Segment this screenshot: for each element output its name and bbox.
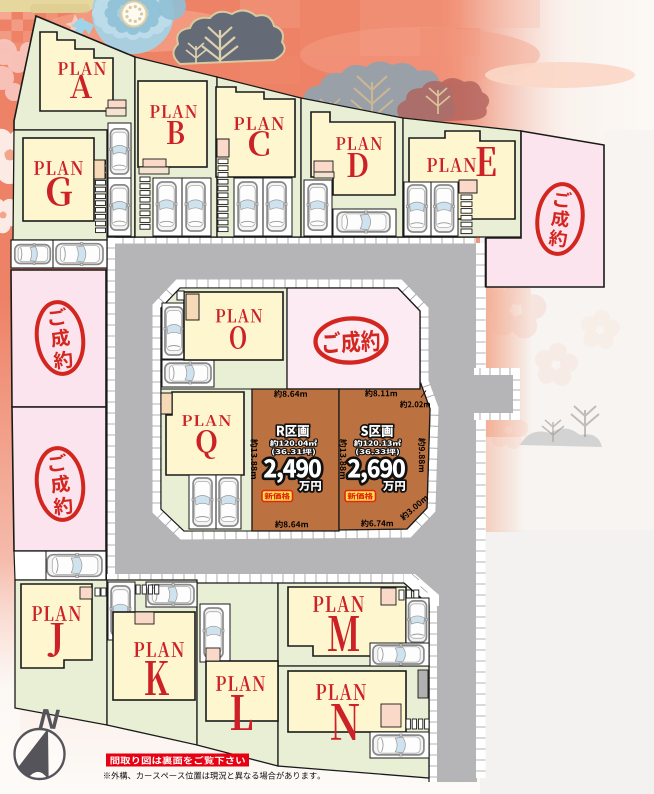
svg-text:N: N [38, 703, 61, 735]
